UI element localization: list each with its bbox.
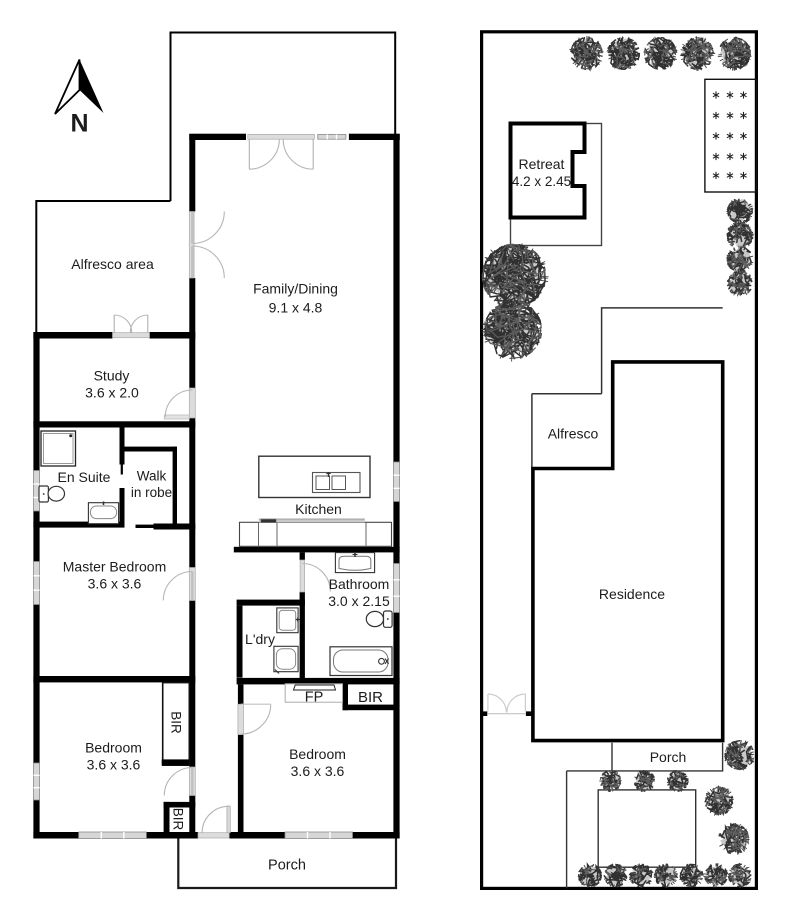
svg-text:Kitchen: Kitchen [295, 501, 342, 517]
svg-text:Porch: Porch [650, 749, 687, 765]
svg-text:BIR: BIR [358, 689, 383, 706]
svg-text:Retreat: Retreat [519, 156, 565, 172]
svg-text:Residence: Residence [599, 586, 665, 602]
svg-text:3.6 x 3.6: 3.6 x 3.6 [87, 757, 141, 773]
svg-text:Alfresco area: Alfresco area [71, 256, 154, 272]
svg-text:BIR: BIR [168, 711, 183, 734]
svg-text:3.6 x 3.6: 3.6 x 3.6 [291, 763, 345, 779]
svg-text:3.6 x 3.6: 3.6 x 3.6 [88, 576, 142, 592]
svg-text:9.1 x 4.8: 9.1 x 4.8 [269, 300, 323, 316]
svg-text:Walk: Walk [137, 469, 167, 484]
svg-text:in robe: in robe [131, 485, 172, 500]
svg-text:Bathroom: Bathroom [329, 576, 390, 592]
svg-text:3.6 x 2.0: 3.6 x 2.0 [85, 385, 139, 401]
svg-text:N: N [70, 110, 88, 138]
svg-text:Bedroom: Bedroom [85, 740, 142, 756]
svg-text:Bedroom: Bedroom [289, 746, 346, 762]
svg-text:Study: Study [94, 368, 130, 384]
svg-text:3.0 x 2.15: 3.0 x 2.15 [328, 593, 390, 609]
svg-text:L'dry: L'dry [245, 631, 275, 647]
svg-text:Master Bedroom: Master Bedroom [63, 559, 166, 575]
svg-text:Family/Dining: Family/Dining [253, 281, 338, 297]
svg-text:En Suite: En Suite [58, 469, 111, 485]
svg-text:Alfresco: Alfresco [548, 426, 599, 442]
svg-text:FP: FP [305, 689, 324, 705]
svg-text:BIR: BIR [170, 808, 185, 831]
svg-text:Porch: Porch [268, 858, 306, 874]
svg-text:4.2 x 2.45: 4.2 x 2.45 [512, 174, 571, 189]
